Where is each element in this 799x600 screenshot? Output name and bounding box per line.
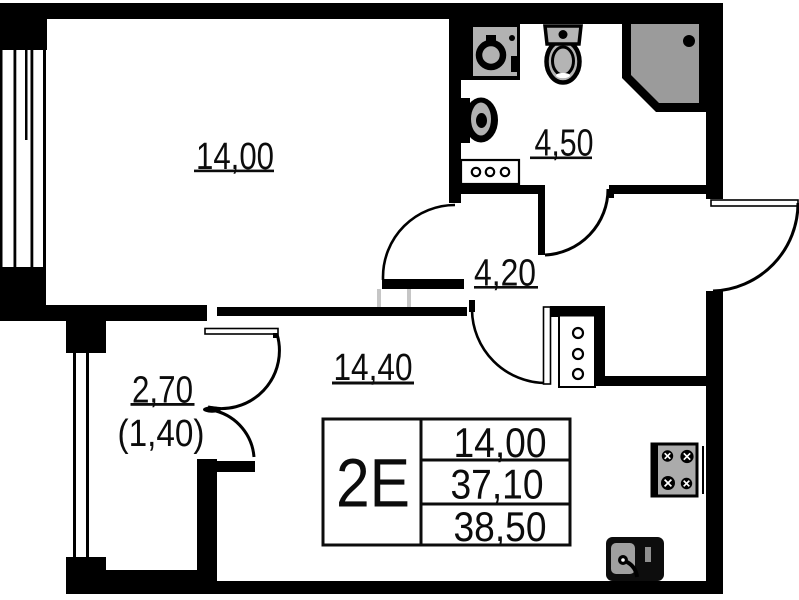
svg-text:(1,40): (1,40) xyxy=(118,413,205,455)
svg-text:14,00: 14,00 xyxy=(454,419,547,466)
svg-text:2E: 2E xyxy=(336,445,410,522)
svg-text:37,10: 37,10 xyxy=(451,461,544,508)
svg-text:38,50: 38,50 xyxy=(454,503,547,550)
